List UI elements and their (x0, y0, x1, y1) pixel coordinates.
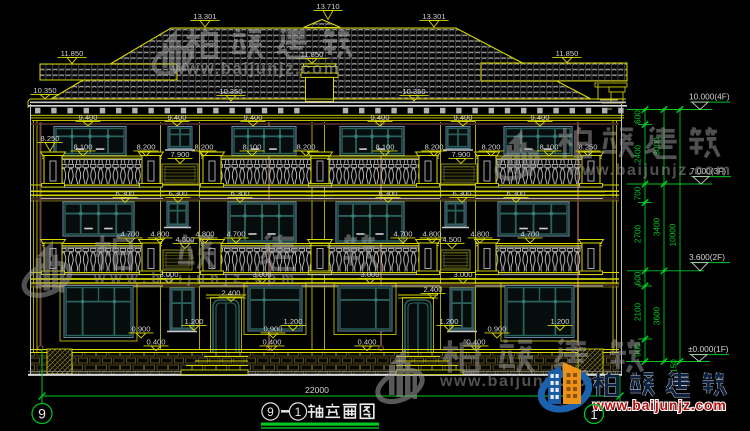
svg-text:6.300: 6.300 (452, 189, 471, 198)
svg-text:13.301: 13.301 (422, 12, 445, 21)
svg-text:3.000: 3.000 (360, 270, 379, 279)
svg-text:0.900: 0.900 (487, 325, 506, 334)
svg-text:10.350: 10.350 (33, 86, 56, 95)
svg-text:1.200: 1.200 (283, 317, 302, 326)
svg-text:1: 1 (295, 405, 302, 419)
svg-text:9.400: 9.400 (243, 113, 262, 122)
svg-text:0.400: 0.400 (262, 338, 281, 347)
svg-text:600: 600 (634, 271, 643, 285)
svg-text:4.800: 4.800 (470, 230, 489, 239)
svg-text:2400: 2400 (634, 144, 643, 163)
svg-text:2.400: 2.400 (221, 289, 240, 298)
svg-text:8.200: 8.200 (136, 143, 155, 152)
svg-text:4.500: 4.500 (442, 235, 461, 244)
svg-text:2.400: 2.400 (423, 285, 442, 294)
svg-text:10000: 10000 (669, 223, 678, 246)
svg-text:1.200: 1.200 (550, 317, 569, 326)
svg-text:8.200: 8.200 (194, 143, 213, 152)
svg-text:9.400: 9.400 (78, 113, 97, 122)
svg-text:0.900: 0.900 (131, 325, 150, 334)
svg-text:8.200: 8.200 (424, 143, 443, 152)
svg-text:7.900: 7.900 (170, 150, 189, 159)
svg-text:2100: 2100 (634, 302, 643, 321)
svg-text:11.850: 11.850 (61, 49, 84, 58)
svg-text:www.baijunjz.com: www.baijunjz.com (171, 60, 340, 78)
svg-text:0.400: 0.400 (146, 338, 165, 347)
svg-text:6.300: 6.300 (378, 189, 397, 198)
svg-text:3.600(2F): 3.600(2F) (689, 252, 725, 262)
svg-text:1.200: 1.200 (184, 317, 203, 326)
svg-text:9: 9 (267, 405, 274, 419)
svg-text:3600: 3600 (653, 306, 662, 325)
svg-text:1: 1 (590, 407, 597, 422)
svg-text:8.200: 8.200 (296, 143, 315, 152)
svg-text:8.100: 8.100 (375, 143, 394, 152)
svg-text:11.850: 11.850 (556, 49, 579, 58)
svg-text:8.200: 8.200 (481, 143, 500, 152)
svg-text:8.100: 8.100 (242, 143, 261, 152)
svg-text:4.700: 4.700 (120, 230, 139, 239)
svg-text:4.800: 4.800 (150, 230, 169, 239)
svg-text:3.000: 3.000 (453, 270, 472, 279)
svg-text:8.250: 8.250 (40, 134, 59, 143)
svg-text:www.baijunjz.com: www.baijunjz.com (567, 162, 732, 179)
svg-text:1.200: 1.200 (439, 317, 458, 326)
svg-text:www.baijunjz.com: www.baijunjz.com (93, 271, 299, 287)
svg-text:9.400: 9.400 (370, 113, 389, 122)
svg-text:6.300: 6.300 (506, 189, 525, 198)
svg-text:600: 600 (634, 110, 643, 124)
svg-text:6.300: 6.300 (115, 189, 134, 198)
svg-text:6.300: 6.300 (168, 189, 187, 198)
svg-text:0.900: 0.900 (263, 325, 282, 334)
svg-text:2700: 2700 (634, 224, 643, 243)
svg-text:7.900: 7.900 (451, 150, 470, 159)
svg-text:9: 9 (38, 406, 46, 422)
svg-text:4.700: 4.700 (226, 230, 245, 239)
svg-text:4.800: 4.800 (422, 230, 441, 239)
svg-text:8.100: 8.100 (539, 143, 558, 152)
svg-text:150: 150 (670, 359, 679, 373)
svg-text:3400: 3400 (653, 217, 662, 236)
svg-text:6.300: 6.300 (230, 189, 249, 198)
svg-text:9.400: 9.400 (453, 113, 472, 122)
svg-text:700: 700 (634, 186, 643, 200)
svg-text:9.400: 9.400 (167, 113, 186, 122)
svg-text:10.000(4F): 10.000(4F) (689, 92, 730, 102)
svg-text:www.baijunjz.com: www.baijunjz.com (592, 397, 727, 413)
svg-text:13.301: 13.301 (193, 12, 216, 21)
svg-text:10.350: 10.350 (219, 87, 242, 96)
svg-text:4.700: 4.700 (393, 230, 412, 239)
svg-text:22000: 22000 (305, 385, 329, 395)
svg-text:4.700: 4.700 (520, 230, 539, 239)
svg-text:9.400: 9.400 (530, 113, 549, 122)
svg-text:0.400: 0.400 (357, 338, 376, 347)
svg-text:8.100: 8.100 (73, 143, 92, 152)
svg-text:±0.000(1F): ±0.000(1F) (688, 344, 729, 354)
svg-text:13.710: 13.710 (316, 2, 339, 11)
svg-text:10.350: 10.350 (402, 87, 425, 96)
